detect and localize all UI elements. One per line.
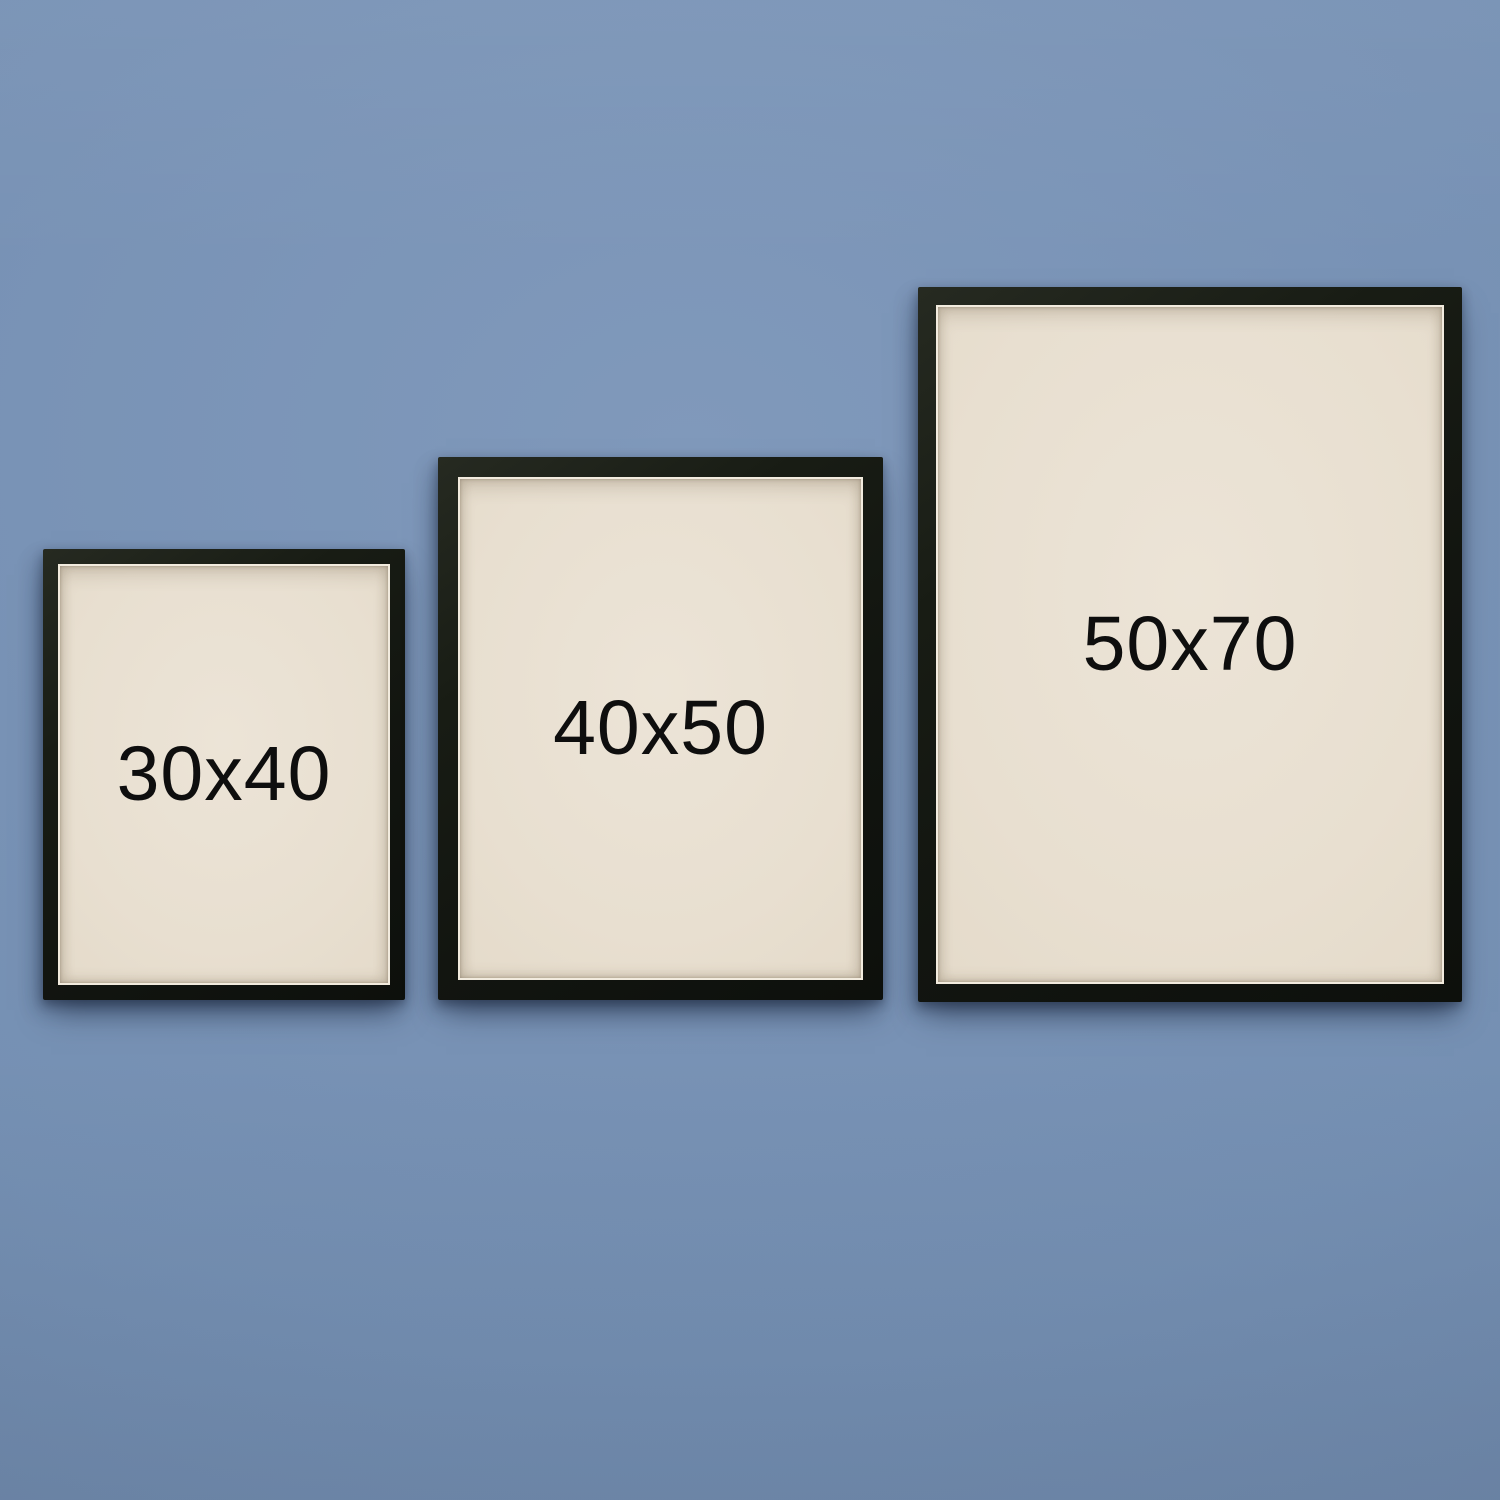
picture-frame-40x50: 40x50 — [438, 457, 883, 1000]
frame-paper-30x40: 30x40 — [58, 564, 390, 985]
picture-frame-50x70: 50x70 — [918, 287, 1462, 1002]
picture-frame-30x40: 30x40 — [43, 549, 405, 1000]
size-label-40x50: 40x50 — [553, 690, 768, 767]
frame-paper-40x50: 40x50 — [458, 477, 863, 980]
size-label-50x70: 50x70 — [1083, 606, 1298, 683]
frame-paper-50x70: 50x70 — [936, 305, 1444, 984]
size-label-30x40: 30x40 — [117, 736, 332, 813]
wall-background: 30x40 40x50 50x70 — [0, 0, 1500, 1500]
